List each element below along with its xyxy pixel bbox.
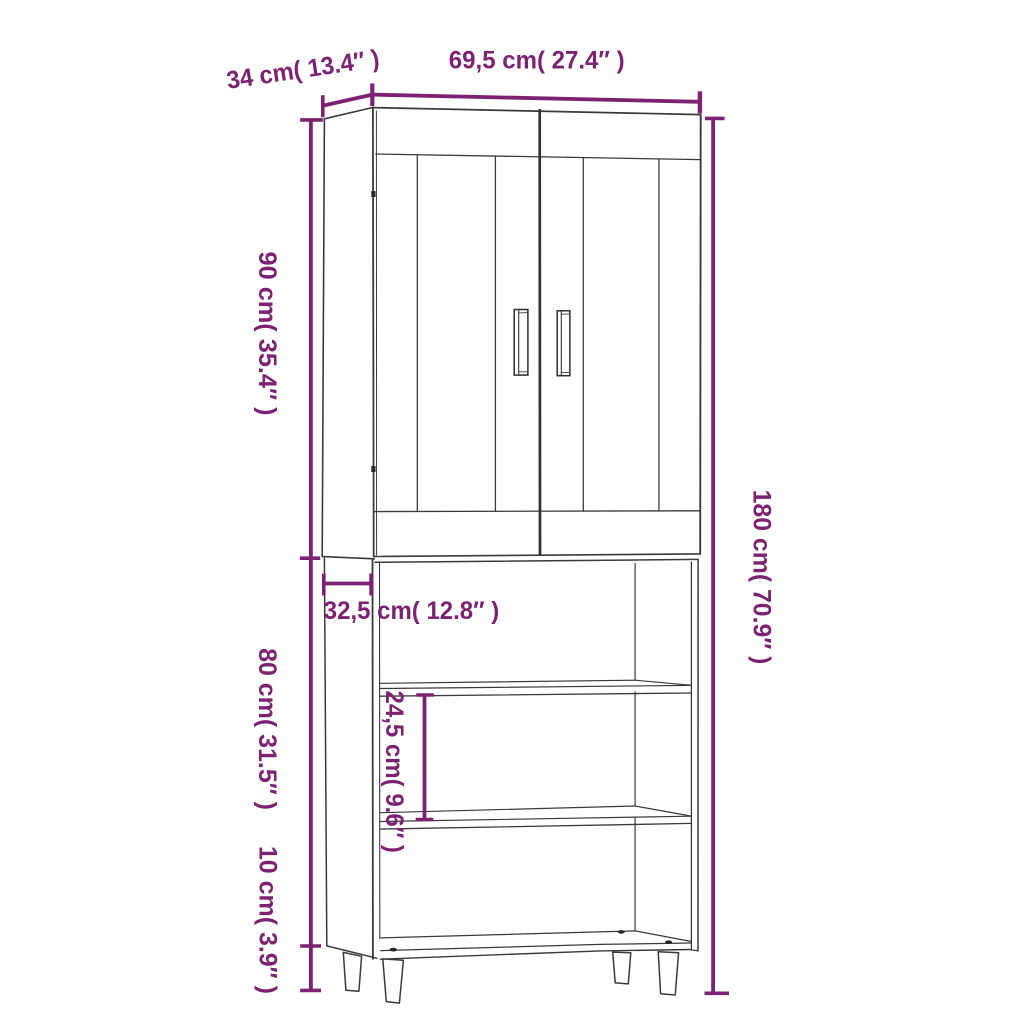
svg-text:32,5 cm( 12.8″ ): 32,5 cm( 12.8″ ) [324, 597, 500, 625]
svg-text:24,5 cm( 9.6″ ): 24,5 cm( 9.6″ ) [380, 691, 408, 853]
svg-text:69,5 cm( 27.4″ ): 69,5 cm( 27.4″ ) [449, 46, 625, 74]
svg-text:80 cm( 31.5″ ): 80 cm( 31.5″ ) [253, 648, 281, 810]
svg-text:90 cm( 35.4″ ): 90 cm( 35.4″ ) [253, 252, 281, 416]
svg-text:10 cm( 3.9″ ): 10 cm( 3.9″ ) [254, 846, 282, 994]
svg-text:180 cm( 70.9″ ): 180 cm( 70.9″ ) [748, 490, 776, 665]
